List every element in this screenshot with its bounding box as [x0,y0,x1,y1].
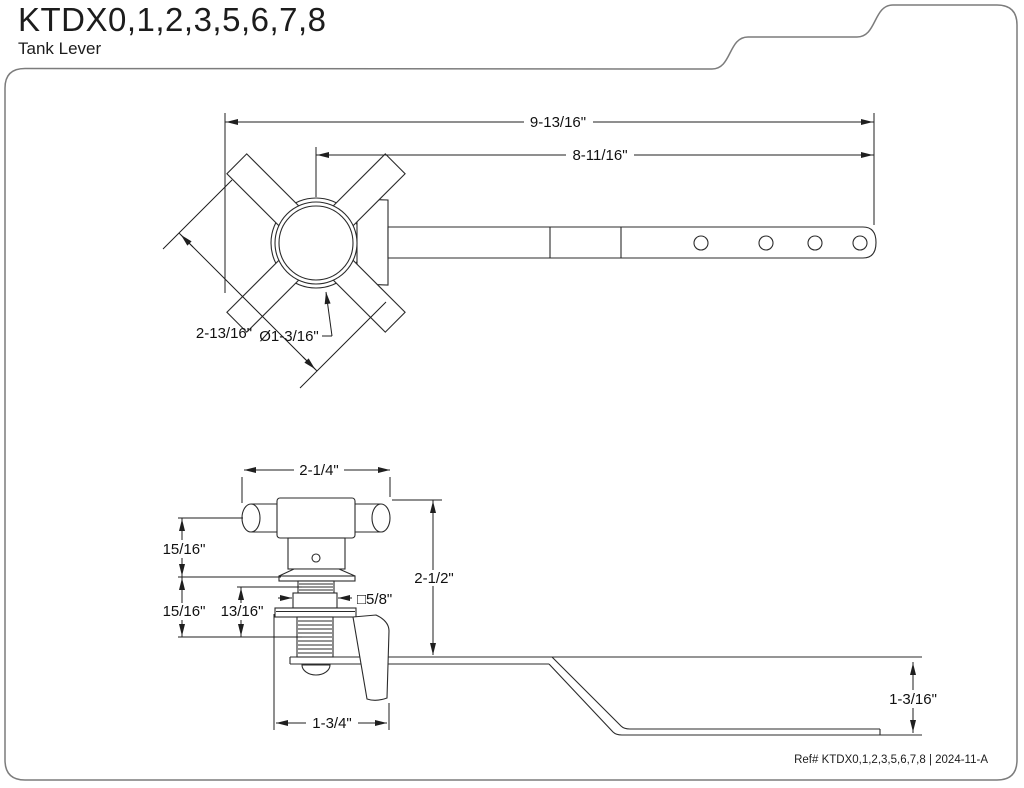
base-flange [279,569,355,576]
reference-footer: Ref# KTDX0,1,2,3,5,6,7,8 | 2024-11-A [794,754,988,766]
mounting-hole [853,236,867,250]
dim-overall-height: 2-1/2" [392,500,454,655]
top-view: 9-13/16" 8-11/16" 2-13/16" Ø1-3/16" [158,85,876,402]
square-shank [293,593,337,608]
mounting-flange [275,608,356,617]
dim-label-handle-width: 2-1/4" [299,462,339,479]
dim-label-overall-height: 2-1/2" [414,570,454,587]
set-hole [312,554,320,562]
dim-label-handle-diagonal: 2-13/16" [196,325,252,342]
mounting-hole [808,236,822,250]
dim-handle-width: 2-1/4" [242,462,390,503]
dome-nut [302,665,330,675]
lever-blade [353,615,389,700]
dim-label-square-shank: □5/8" [357,591,392,608]
dim-label-knob-diameter: Ø1-3/16" [259,328,319,345]
dim-arm-drop: 1-3/16" [889,662,937,733]
side-view: 2-1/4" 15/16" 15/16" 13/16" □5/8" [163,462,937,735]
mounting-hole [759,236,773,250]
dim-label-thread-length: 13/16" [221,603,264,620]
lever-arm-bar [388,227,876,258]
mounting-hole [694,236,708,250]
dim-label-arm-to-center: 8-11/16" [572,147,627,164]
handle-hub [277,498,355,538]
handle-cylinder-right-cap [372,504,390,532]
dim-label-upper-offset: 15/16" [163,541,206,558]
drawing-canvas: 9-13/16" 8-11/16" 2-13/16" Ø1-3/16" [0,0,1024,788]
base-flange-rim [279,576,355,581]
knob-circle [275,202,357,284]
dim-label-overall-length: 9-13/16" [530,114,586,131]
dim-label-arm-drop: 1-3/16" [889,691,937,708]
dim-upper-offset: 15/16" [163,518,281,577]
dim-label-base-length: 1-3/4" [312,715,352,732]
handle-cylinder-left-cap [242,504,260,532]
dim-label-lower-offset: 15/16" [163,603,206,620]
